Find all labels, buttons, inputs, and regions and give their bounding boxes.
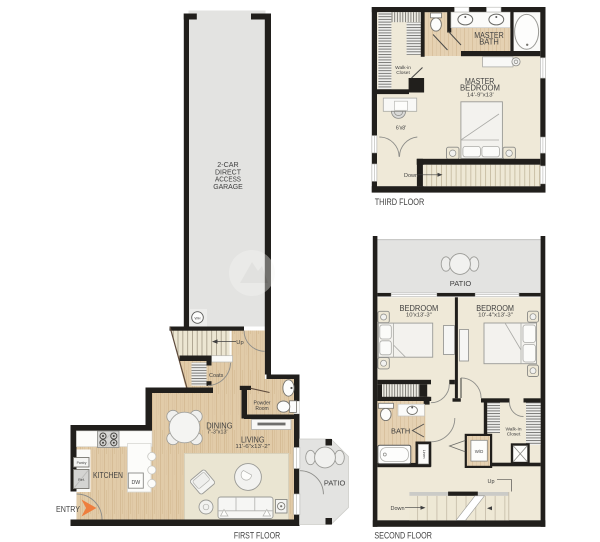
svg-text:Walk-In: Walk-In bbox=[505, 426, 521, 432]
svg-text:PATIO: PATIO bbox=[324, 479, 345, 488]
svg-text:Closet: Closet bbox=[507, 432, 521, 438]
svg-text:Down: Down bbox=[391, 506, 405, 512]
svg-text:Up: Up bbox=[488, 479, 495, 485]
svg-text:BEDROOM: BEDROOM bbox=[460, 83, 500, 92]
svg-text:Ref.: Ref. bbox=[78, 478, 85, 482]
svg-text:KITCHEN: KITCHEN bbox=[93, 470, 123, 480]
svg-text:GARAGE: GARAGE bbox=[213, 182, 243, 191]
svg-text:THIRD FLOOR: THIRD FLOOR bbox=[375, 197, 425, 208]
svg-text:Coats: Coats bbox=[209, 373, 224, 379]
svg-text:FIRST FLOOR: FIRST FLOOR bbox=[234, 530, 280, 541]
svg-text:WH: WH bbox=[195, 317, 201, 321]
svg-text:PATIO: PATIO bbox=[450, 279, 471, 288]
svg-text:11'-6"x13'-2": 11'-6"x13'-2" bbox=[235, 444, 270, 450]
svg-text:W/D: W/D bbox=[475, 449, 484, 454]
svg-text:10'-4"x13'-3": 10'-4"x13'-3" bbox=[478, 313, 513, 319]
svg-text:Down: Down bbox=[404, 173, 418, 179]
svg-text:BATH: BATH bbox=[391, 426, 410, 435]
svg-text:DW: DW bbox=[131, 480, 140, 486]
svg-text:14'-9"x13': 14'-9"x13' bbox=[467, 92, 494, 98]
svg-text:ENTRY: ENTRY bbox=[56, 504, 80, 514]
svg-text:Pantry: Pantry bbox=[77, 461, 87, 465]
svg-text:BATH: BATH bbox=[479, 38, 499, 47]
svg-text:Closet: Closet bbox=[396, 70, 410, 76]
svg-text:Linen: Linen bbox=[422, 450, 426, 459]
svg-text:7'-3"x13': 7'-3"x13' bbox=[207, 429, 227, 435]
svg-text:Up: Up bbox=[236, 340, 243, 346]
svg-text:10'x13'-3": 10'x13'-3" bbox=[406, 313, 432, 319]
svg-text:6'x8': 6'x8' bbox=[396, 125, 406, 131]
svg-text:Walk-in: Walk-in bbox=[395, 65, 411, 71]
svg-text:Room: Room bbox=[255, 406, 268, 412]
svg-text:SECOND FLOOR: SECOND FLOOR bbox=[374, 530, 432, 541]
